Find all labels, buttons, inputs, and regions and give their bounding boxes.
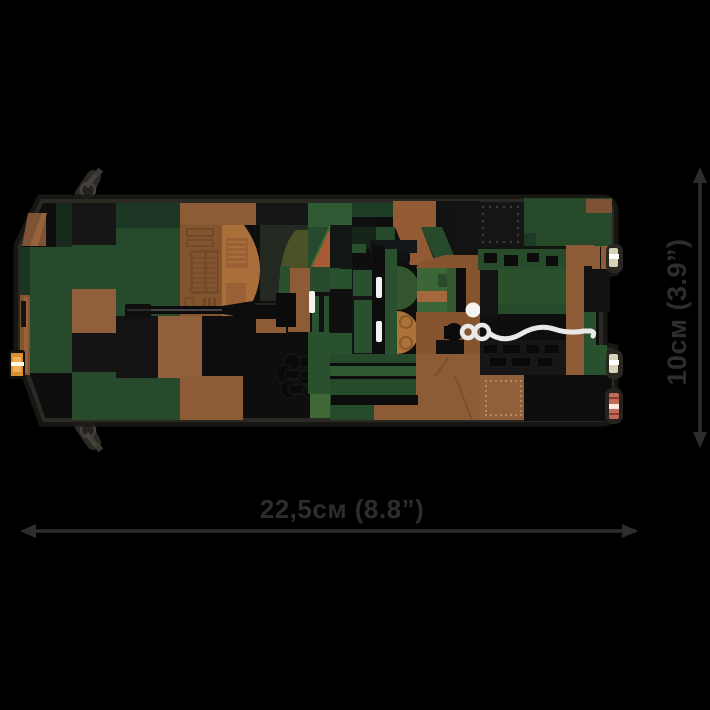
svg-text:22,5см (8.8”): 22,5см (8.8”): [260, 494, 424, 524]
svg-text:10см (3.9”): 10см (3.9”): [662, 238, 692, 385]
